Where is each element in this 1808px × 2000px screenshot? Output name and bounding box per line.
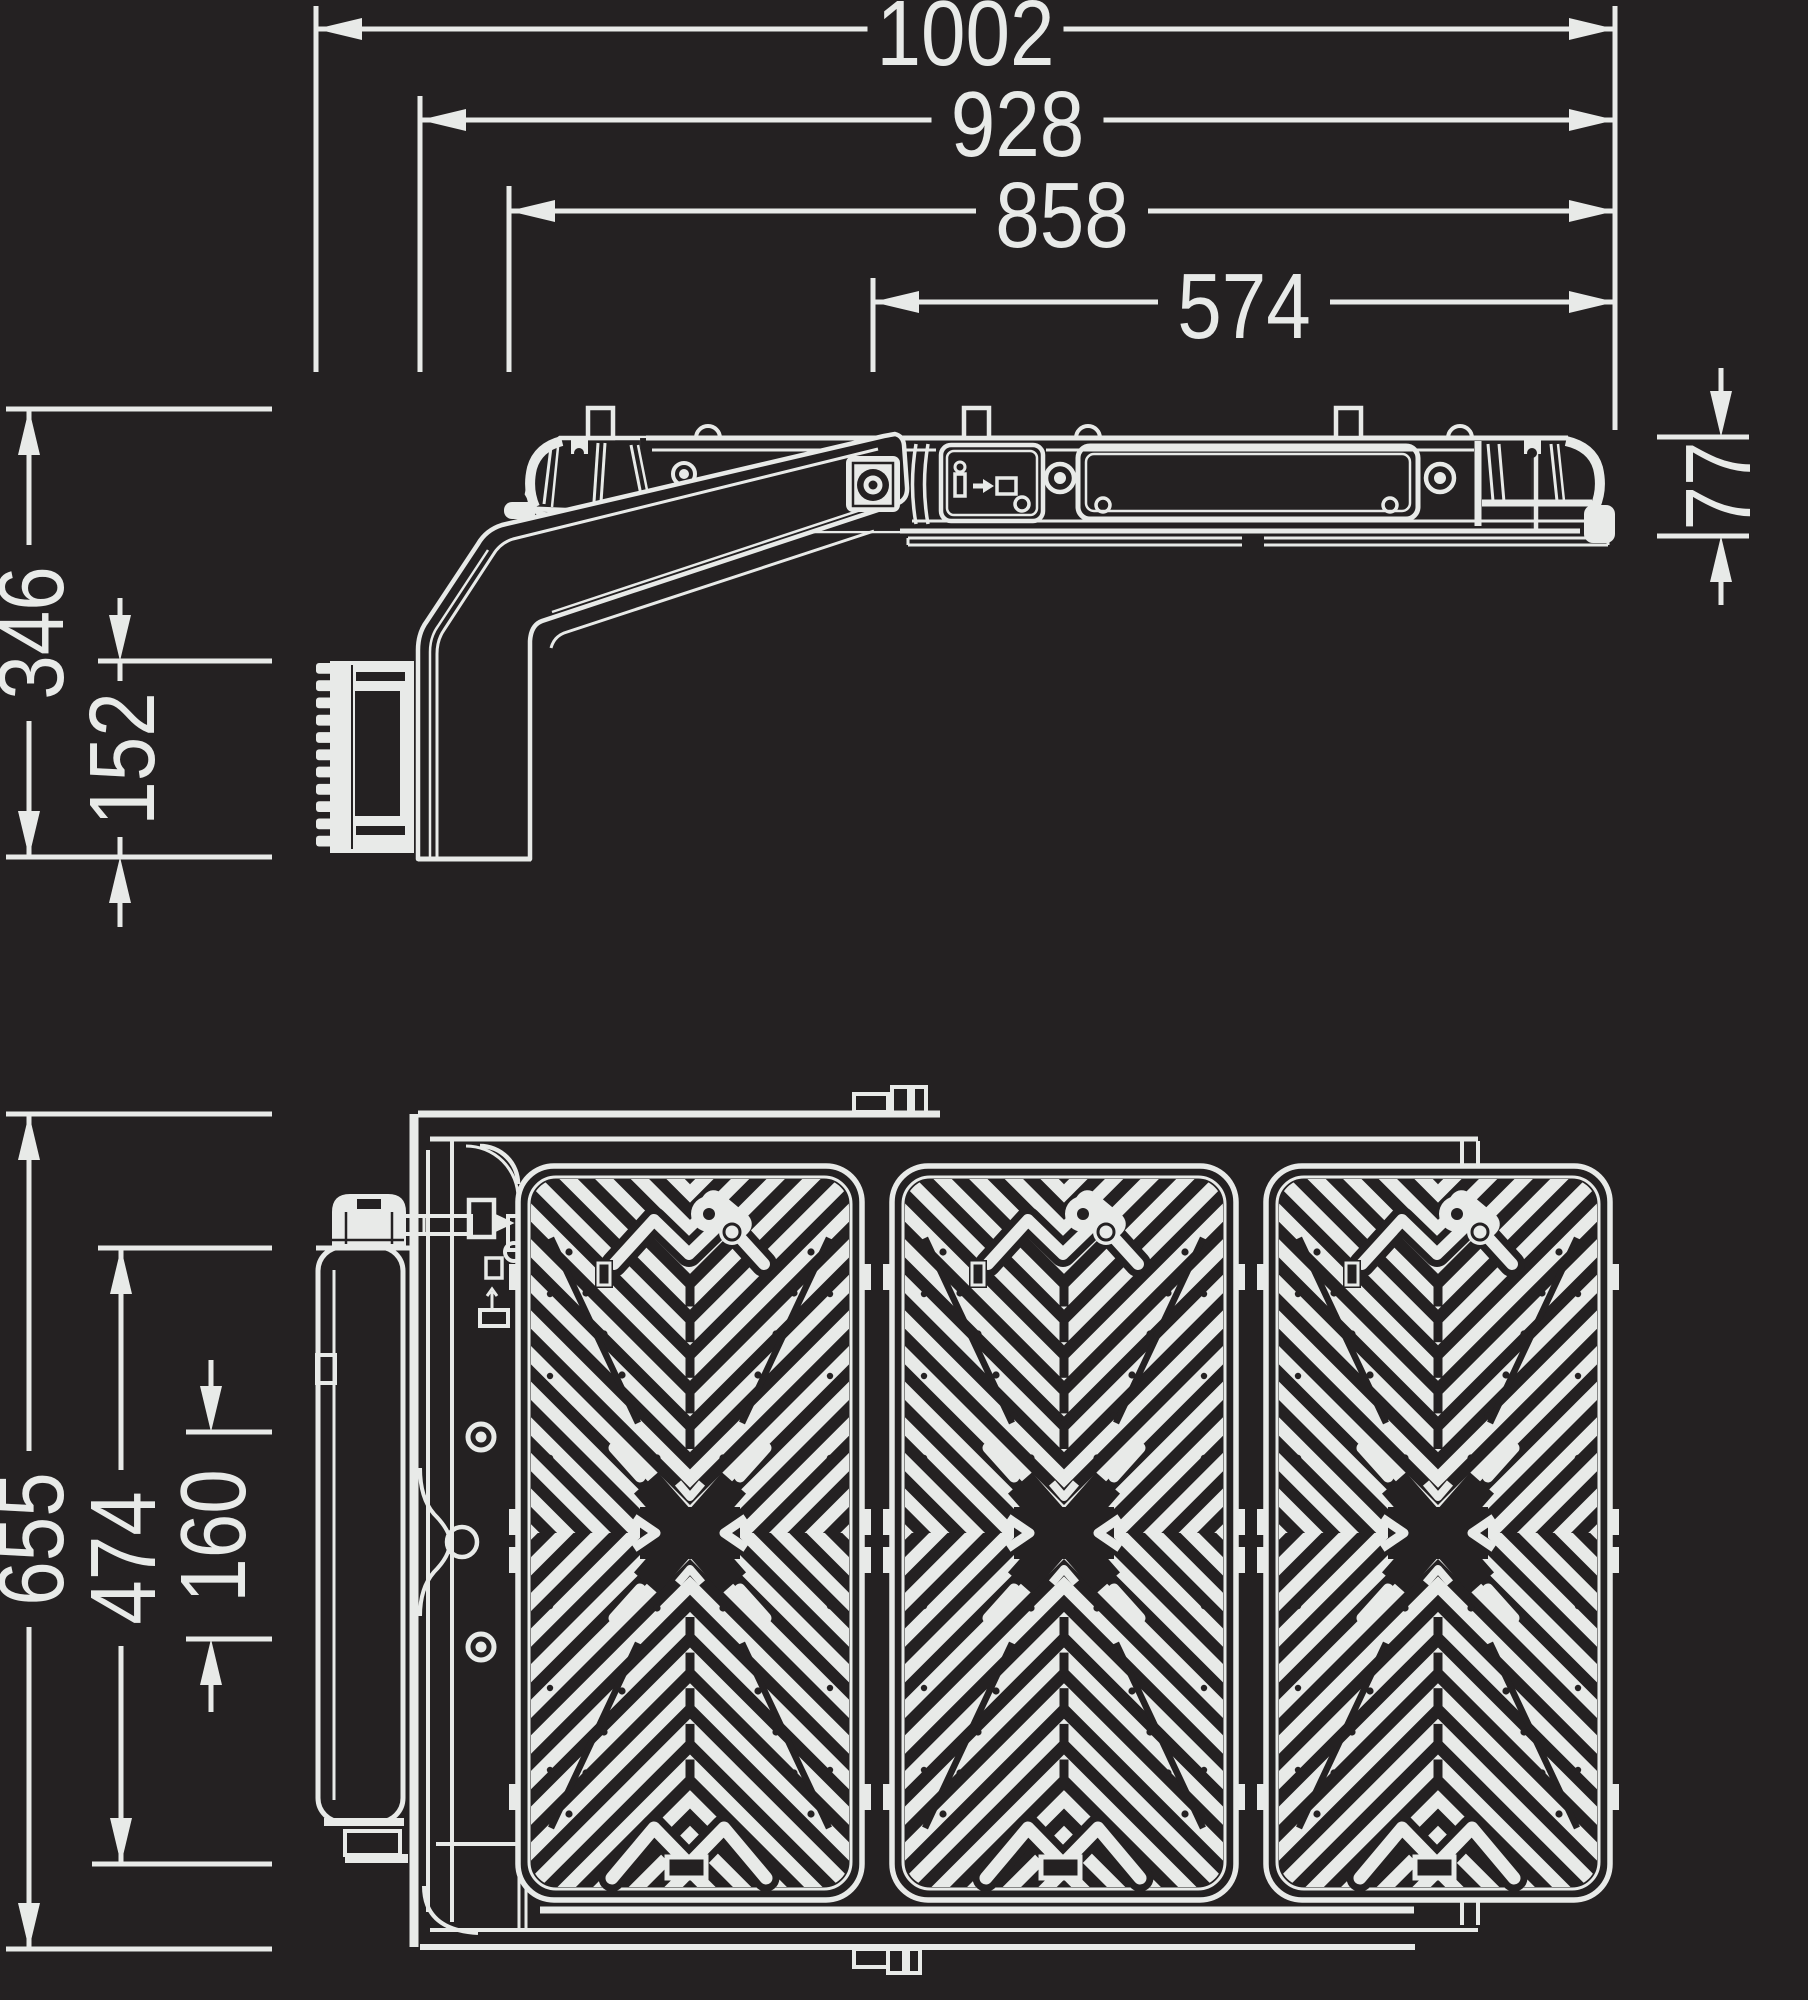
svg-text:474: 474 bbox=[71, 1491, 175, 1625]
svg-text:346: 346 bbox=[0, 566, 83, 700]
svg-text:858: 858 bbox=[995, 163, 1129, 267]
svg-text:928: 928 bbox=[951, 72, 1085, 176]
svg-text:77: 77 bbox=[1666, 442, 1770, 531]
svg-text:160: 160 bbox=[161, 1469, 265, 1603]
svg-text:574: 574 bbox=[1177, 254, 1311, 358]
svg-text:152: 152 bbox=[70, 692, 174, 826]
